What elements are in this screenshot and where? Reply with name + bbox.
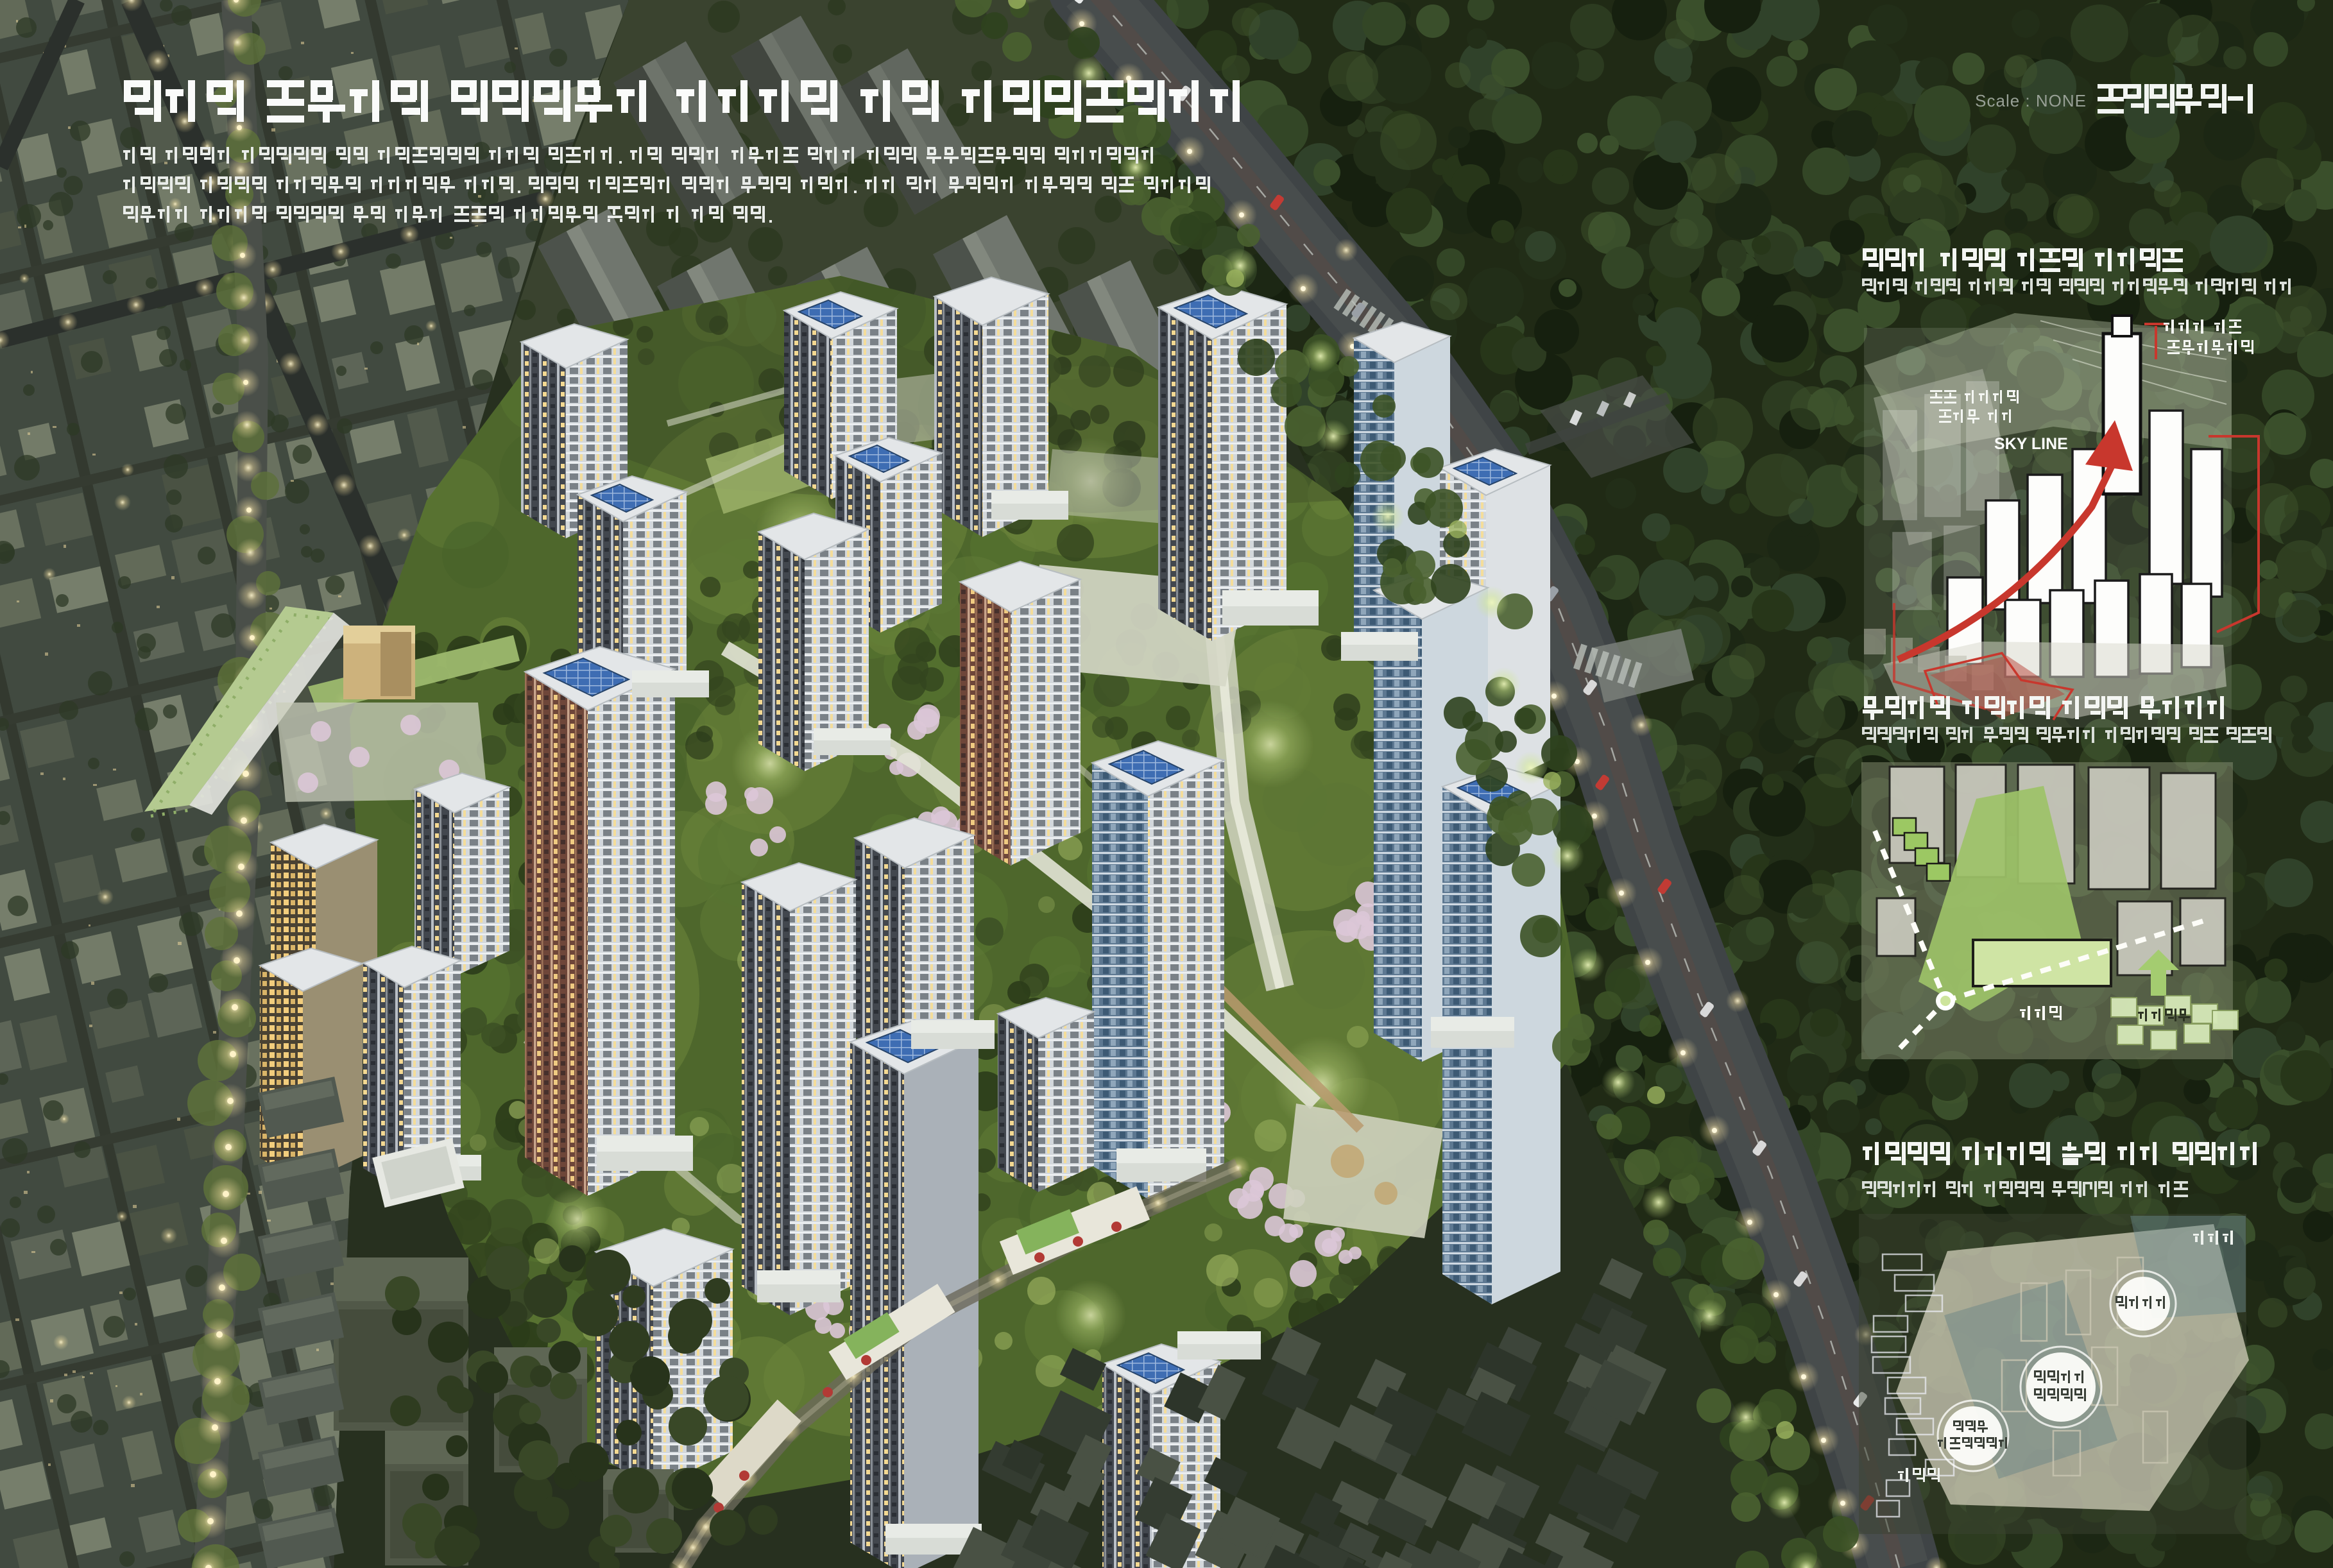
svg-text:Scale : NONE: Scale : NONE bbox=[1975, 91, 2087, 110]
svg-text:SKY LINE: SKY LINE bbox=[1994, 435, 2068, 453]
